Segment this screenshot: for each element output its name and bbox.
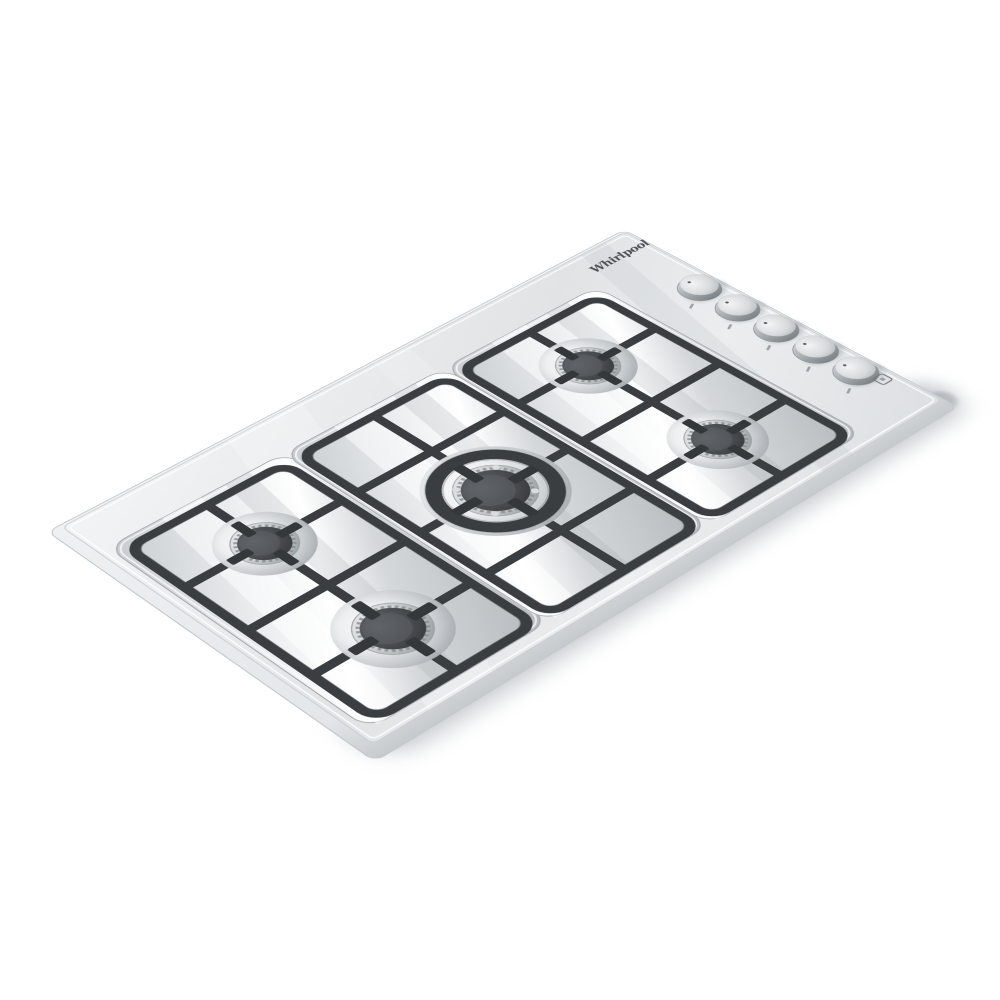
cooktop-graphic: Whirlpool (62, 232, 942, 744)
product-image-canvas: Whirlpool (0, 0, 1000, 1000)
gas-cooktop: Whirlpool (62, 232, 942, 744)
